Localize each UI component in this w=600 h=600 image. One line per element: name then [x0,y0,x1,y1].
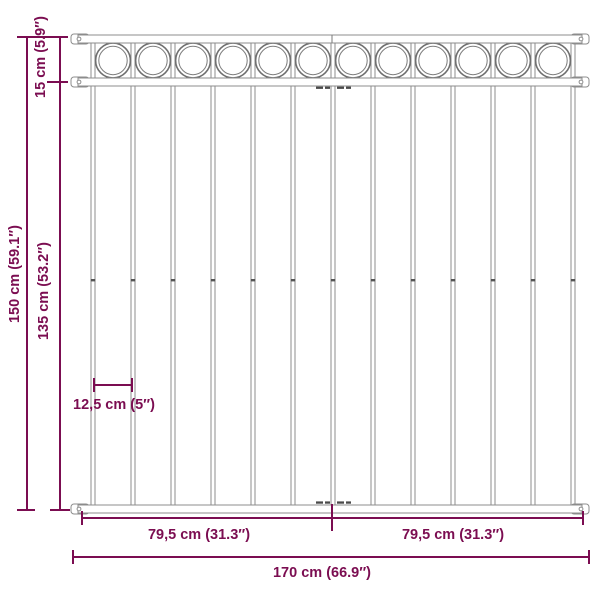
screw-hole-middle-left [77,80,81,84]
middle-rail [78,78,582,86]
ring-outer [376,43,411,78]
ring-inner [299,46,327,74]
ring-inner [139,46,167,74]
vertical-bar [531,86,535,505]
bar-joint [531,279,535,281]
ring-inner [459,46,487,74]
vertical-bar [451,86,455,505]
rails [78,35,582,513]
screw-hole-top-right [579,37,583,41]
ring-post [491,43,495,78]
label-total-width: 170 cm (66.9″) [273,565,371,581]
vertical-bar [411,86,415,505]
vertical-bar [331,86,335,505]
bar-joint [571,279,575,281]
ring-inner [339,46,367,74]
top-rail [78,35,582,43]
ring-post [451,43,455,78]
screw-hole-bottom-right [579,507,583,511]
label-left-half-width: 79,5 cm (31.3″) [148,527,250,543]
label-total-height: 150 cm (59.1″) [7,225,23,323]
ring-outer [456,43,491,78]
ring-inner [259,46,287,74]
bar-joint [211,279,215,281]
label-right-half-width: 79,5 cm (31.3″) [402,527,504,543]
ring-inner [419,46,447,74]
ring-inner [99,46,127,74]
ring-outer [496,43,531,78]
screw-hole-middle-right [579,80,583,84]
bar-joint [91,279,95,281]
bar-joint [371,279,375,281]
dimension-labels: 150 cm (59.1″) 15 cm (5.9″) 135 cm (53.2… [7,16,504,581]
ring-post [571,43,575,78]
ring-posts-group [91,43,575,78]
vertical-bar [571,86,575,505]
vertical-bar [371,86,375,505]
diagram-canvas: 150 cm (59.1″) 15 cm (5.9″) 135 cm (53.2… [0,0,600,600]
bar-joint [291,279,295,281]
vertical-bar [251,86,255,505]
ring-post [291,43,295,78]
label-top-section-height: 15 cm (5.9″) [33,16,49,98]
ring-inner [219,46,247,74]
ring-inner [379,46,407,74]
ring-outer [336,43,371,78]
vertical-bars-group [91,86,575,505]
ring-post [411,43,415,78]
fence-panel-diagram: 150 cm (59.1″) 15 cm (5.9″) 135 cm (53.2… [0,0,600,600]
bottom-rail [78,505,582,513]
label-lower-section-height: 135 cm (53.2″) [36,242,52,340]
ring-outer [256,43,291,78]
bar-joint [251,279,255,281]
screw-hole-bottom-left [77,507,81,511]
ring-outer [416,43,451,78]
bar-joint [451,279,455,281]
screw-hole-top-left [77,37,81,41]
ring-inner [539,46,567,74]
vertical-bar [91,86,95,505]
ring-outer [216,43,251,78]
ring-post [331,43,335,78]
ring-post [131,43,135,78]
vertical-bar [491,86,495,505]
label-bar-spacing: 12,5 cm (5″) [73,397,155,413]
ring-outer [96,43,131,78]
vertical-bar [131,86,135,505]
mounting-brackets [71,34,589,514]
ring-inner [499,46,527,74]
screw-holes [77,37,583,511]
ring-inner [179,46,207,74]
bar-joint [331,279,335,281]
bar-joint [491,279,495,281]
dimension-lines [17,37,589,564]
ring-outer [176,43,211,78]
bar-joint [411,279,415,281]
ring-post [371,43,375,78]
ring-outer [296,43,331,78]
ring-post [211,43,215,78]
ring-post [531,43,535,78]
ring-post [171,43,175,78]
bar-joints-group [91,279,575,281]
bar-joint [131,279,135,281]
ring-outer [136,43,171,78]
vertical-bar [211,86,215,505]
vertical-bar [291,86,295,505]
ring-outer [536,43,571,78]
ring-post [91,43,95,78]
vertical-bar [171,86,175,505]
bar-joint [171,279,175,281]
ring-post [251,43,255,78]
